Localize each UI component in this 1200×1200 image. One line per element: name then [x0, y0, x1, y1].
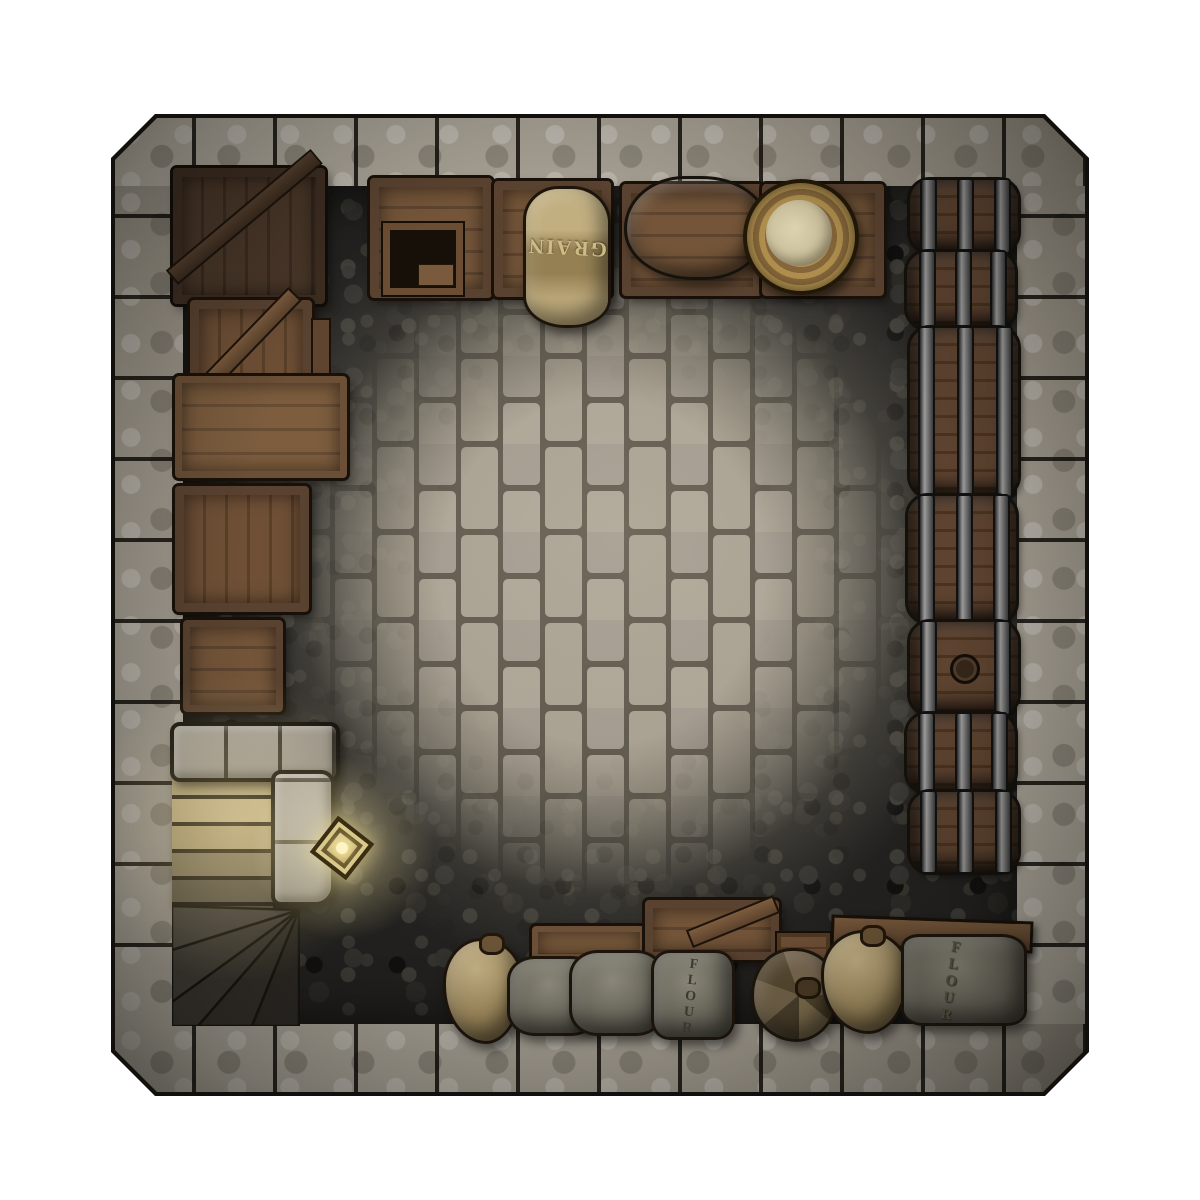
barrel-band — [955, 250, 972, 330]
barrel-band — [995, 790, 1012, 874]
barrel-band — [994, 620, 1011, 716]
plank-sliver — [311, 318, 331, 380]
stair-step — [172, 880, 273, 906]
dark-corner-crate — [173, 168, 325, 304]
barrel-band — [994, 178, 1011, 254]
vertical-plank-crate — [175, 486, 309, 612]
lantern-flame — [334, 840, 351, 857]
barrel — [907, 714, 1015, 792]
sack-knot — [860, 925, 886, 947]
basket-contents — [766, 200, 832, 266]
flour-label-right: FLOUR — [936, 938, 965, 1025]
barrel-band — [957, 326, 974, 498]
barrel-band — [920, 620, 937, 716]
barrel-band — [919, 250, 936, 330]
cellar-map: GRAIN — [115, 118, 1085, 1092]
barrel-band — [918, 712, 935, 794]
barrel-band — [920, 790, 937, 874]
long-plank-table — [175, 376, 347, 478]
barrel-band — [956, 494, 973, 624]
flour-sack-right: FLOUR — [901, 934, 1027, 1026]
barrel-band — [918, 494, 935, 624]
wall-right — [1017, 186, 1085, 1024]
gray-sack-pair — [507, 950, 659, 1032]
barrel-band — [991, 712, 1008, 794]
bunged-barrel — [910, 622, 1018, 714]
barrel-band — [918, 326, 935, 498]
grain-label: GRAIN — [525, 233, 608, 262]
barrel — [910, 328, 1018, 496]
barrel-band — [990, 250, 1007, 330]
barrel-band — [993, 494, 1010, 624]
grain-sack: GRAIN — [523, 186, 611, 328]
barrel-band — [957, 790, 974, 874]
barrel-band — [996, 326, 1013, 498]
barrel — [910, 180, 1018, 252]
bread-basket — [743, 179, 859, 295]
barrel — [908, 496, 1016, 622]
battlemap-stage: GRAIN — [0, 0, 1200, 1200]
crate-brace — [166, 149, 323, 285]
sack-knot — [795, 977, 821, 999]
barrel — [907, 252, 1015, 328]
barrel-band — [920, 178, 937, 254]
barrel-bung — [950, 654, 980, 684]
flour-label-center: FLOUR — [678, 956, 702, 1037]
straight-stairs-descending — [172, 772, 273, 906]
open-box-plank — [418, 264, 454, 286]
small-crate — [183, 620, 283, 712]
winder-stairs — [172, 906, 300, 1026]
barrel-band — [957, 178, 974, 254]
crate-brace — [686, 895, 780, 948]
stair-step — [172, 826, 273, 853]
barrel-band — [955, 712, 972, 794]
flour-sack-center: FLOUR — [651, 950, 735, 1040]
sack-knot — [479, 933, 505, 955]
barrel — [910, 792, 1018, 872]
stair-step — [172, 799, 273, 826]
prep-table-with-open-box — [370, 178, 492, 298]
open-box — [383, 223, 463, 295]
stair-step — [172, 853, 273, 880]
